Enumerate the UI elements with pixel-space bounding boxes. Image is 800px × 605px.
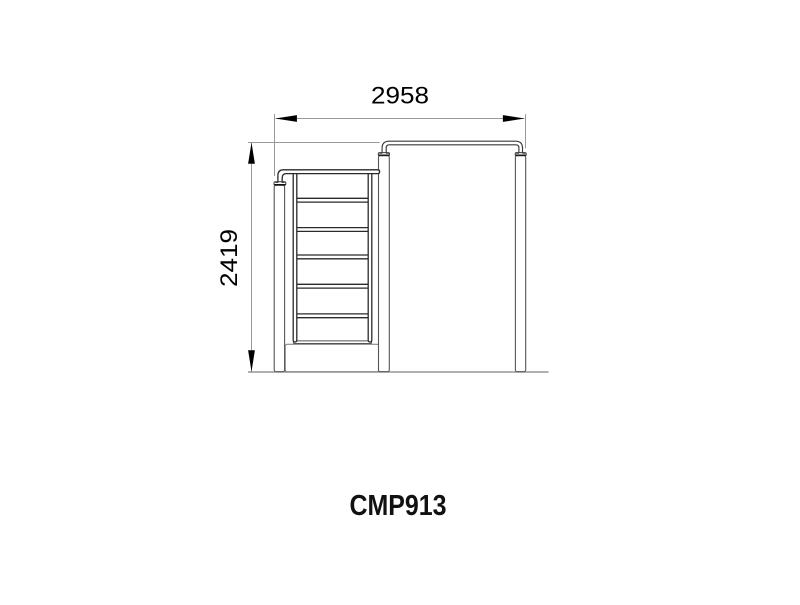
svg-text:CMP913: CMP913: [350, 490, 447, 522]
svg-text:2419: 2419: [216, 229, 243, 287]
svg-text:2958: 2958: [371, 83, 429, 110]
